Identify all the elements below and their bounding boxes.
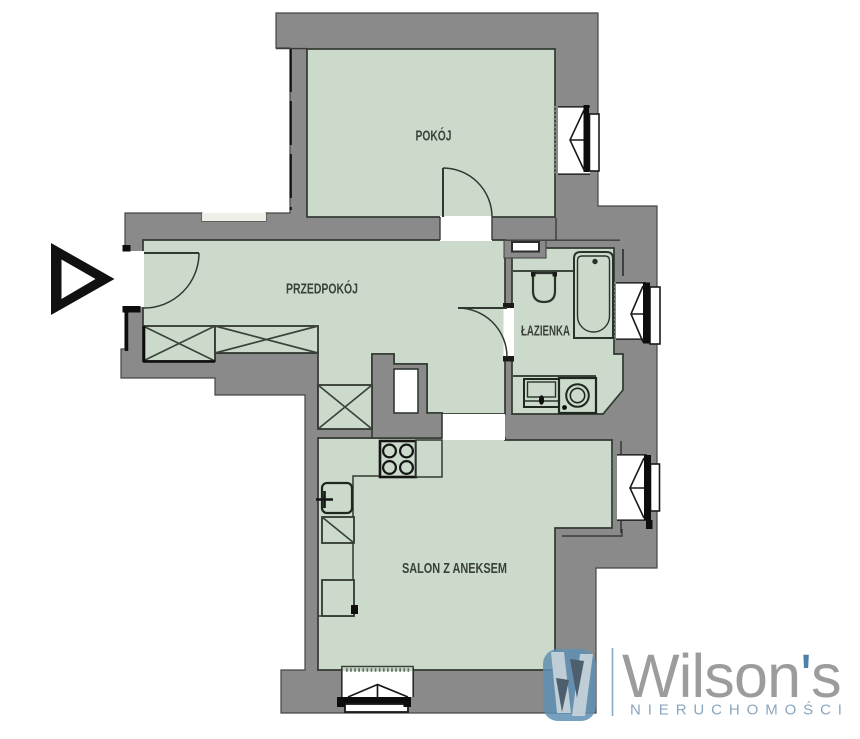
svg-text:PRZEDPOKÓJ: PRZEDPOKÓJ [286,280,358,298]
svg-text:NIERUCHOMOŚCI: NIERUCHOMOŚCI [630,701,849,719]
svg-text:Wilson's: Wilson's [622,642,841,710]
svg-text:ŁAZIENKA: ŁAZIENKA [521,323,570,340]
svg-text:POKÓJ: POKÓJ [416,127,452,145]
svg-text:SALON Z ANEKSEM: SALON Z ANEKSEM [402,560,507,577]
